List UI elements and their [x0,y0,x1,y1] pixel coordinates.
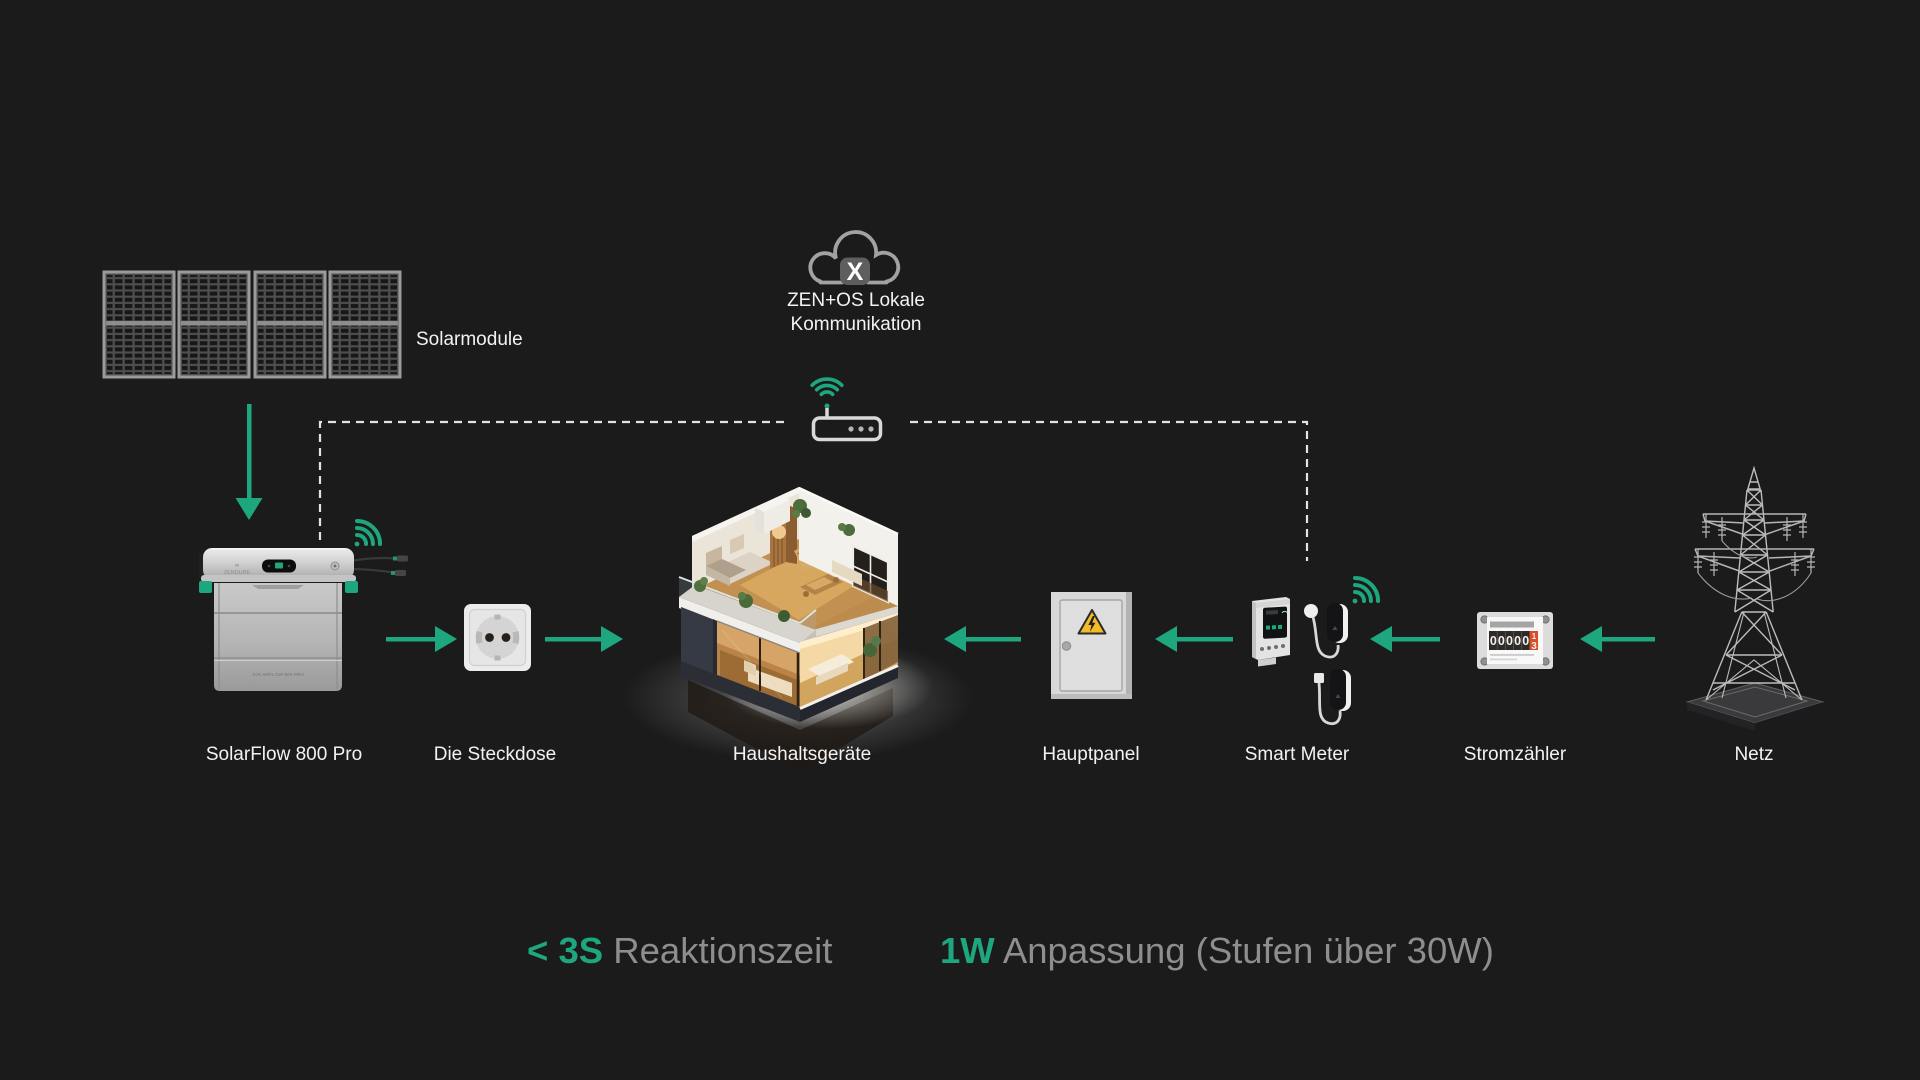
svg-text:ZEN+OS Lokale: ZEN+OS Lokale [787,290,925,311]
svg-text:Hauptpanel: Hauptpanel [1042,744,1139,765]
svg-text:SolarFlow 800 Pro: SolarFlow 800 Pro [206,744,362,765]
svg-text:Netz: Netz [1734,744,1773,765]
svg-text:0: 0 [1514,634,1521,648]
svg-text:X: X [847,258,864,286]
svg-text:0: 0 [1498,634,1505,648]
svg-text:< 3S Reaktionszeit: < 3S Reaktionszeit [527,930,832,971]
svg-text:SOLARFLOW 800 PRO: SOLARFLOW 800 PRO [252,672,304,678]
svg-text:Die Steckdose: Die Steckdose [434,744,557,765]
svg-text:0: 0 [1490,634,1497,648]
svg-text:Solarmodule: Solarmodule [416,329,523,350]
svg-text:Kommunikation: Kommunikation [791,314,922,335]
svg-text:1: 1 [1532,632,1537,641]
svg-text:1W Anpassung (Stufen über 30W): 1W Anpassung (Stufen über 30W) [940,930,1494,971]
svg-text:∞: ∞ [235,563,239,569]
svg-text:ZENDURE: ZENDURE [224,570,251,576]
svg-text:0: 0 [1506,634,1513,648]
svg-text:Stromzähler: Stromzähler [1464,744,1567,765]
svg-text:Haushaltsgeräte: Haushaltsgeräte [733,744,871,765]
svg-text:0: 0 [1522,634,1529,648]
svg-text:3: 3 [1531,641,1537,652]
svg-text:Smart Meter: Smart Meter [1245,744,1350,765]
